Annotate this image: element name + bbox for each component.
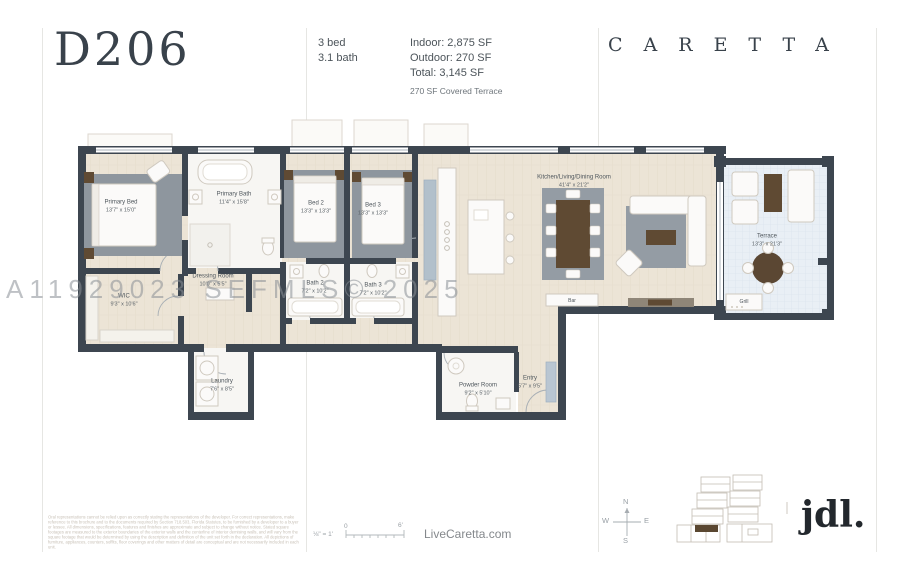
mls-watermark: A11929023 SEFMLS© 2025 <box>6 274 465 305</box>
room-label-laundry: Laundry7'6" x 8'5" <box>210 379 234 394</box>
room-label-powder-room: Powder Room9'2" x 5'10" <box>459 383 497 398</box>
compass <box>613 508 641 536</box>
room-label-bed3: Bed 313'3" x 13'3" <box>358 203 388 218</box>
room-label-primary-bath: Primary Bath11'4" x 15'8" <box>217 192 252 207</box>
scale-ruler <box>346 530 404 538</box>
key-plan <box>677 475 787 542</box>
room-label-bar: Bar <box>568 298 576 305</box>
room-label-kitchen-living-dining: Kitchen/Living/Dining Room41'4" x 21'2" <box>537 175 611 190</box>
room-label-terrace: Terrace13'3" x 21'3" <box>752 234 782 249</box>
room-label-bed2: Bed 213'3" x 13'3" <box>301 201 331 216</box>
floorplan-flyer: D206 3 bed 3.1 bath Indoor: 2,875 SF Out… <box>0 0 900 582</box>
room-label-primary-bed: Primary Bed13'7" x 15'0" <box>104 200 137 215</box>
room-label-entry: Entry5'7" x 9'5" <box>518 376 542 391</box>
exterior-outlines <box>88 120 468 150</box>
room-label-grill: Grill <box>740 299 749 306</box>
